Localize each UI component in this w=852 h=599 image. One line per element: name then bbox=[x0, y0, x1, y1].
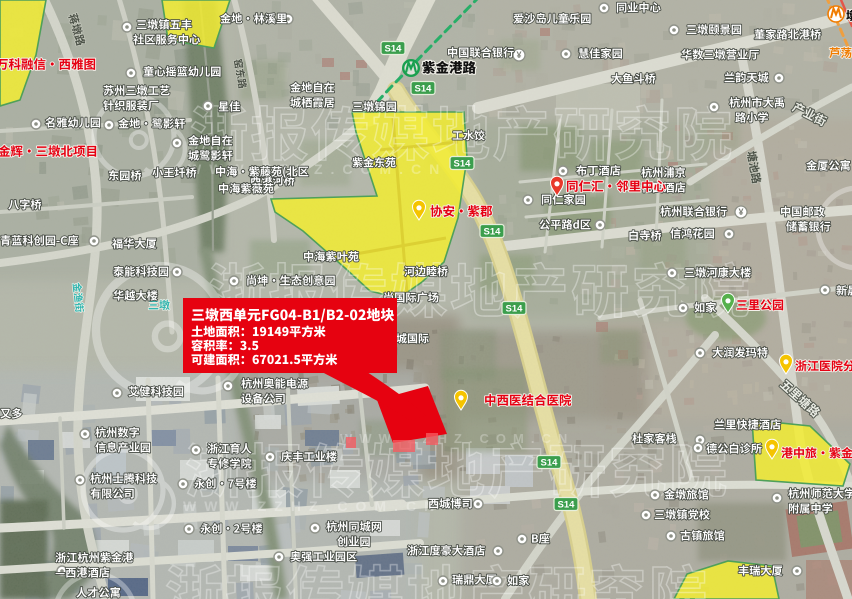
svg-text:S14: S14 bbox=[454, 158, 472, 169]
svg-text:S14: S14 bbox=[558, 499, 576, 510]
svg-text:WWW.ZZHZ.COM.CN: WWW.ZZHZ.COM.CN bbox=[340, 431, 574, 446]
svg-text:¥: ¥ bbox=[738, 207, 743, 217]
svg-text:S14: S14 bbox=[484, 226, 502, 237]
svg-text:S14: S14 bbox=[385, 43, 403, 54]
svg-text:S14: S14 bbox=[415, 83, 433, 94]
svg-text:WWW.ZZHZ.COM.CN: WWW.ZZHZ.COM.CN bbox=[183, 498, 442, 514]
svg-text:S14: S14 bbox=[506, 303, 524, 314]
svg-text:¥: ¥ bbox=[516, 50, 521, 60]
svg-text:S14: S14 bbox=[541, 457, 559, 468]
